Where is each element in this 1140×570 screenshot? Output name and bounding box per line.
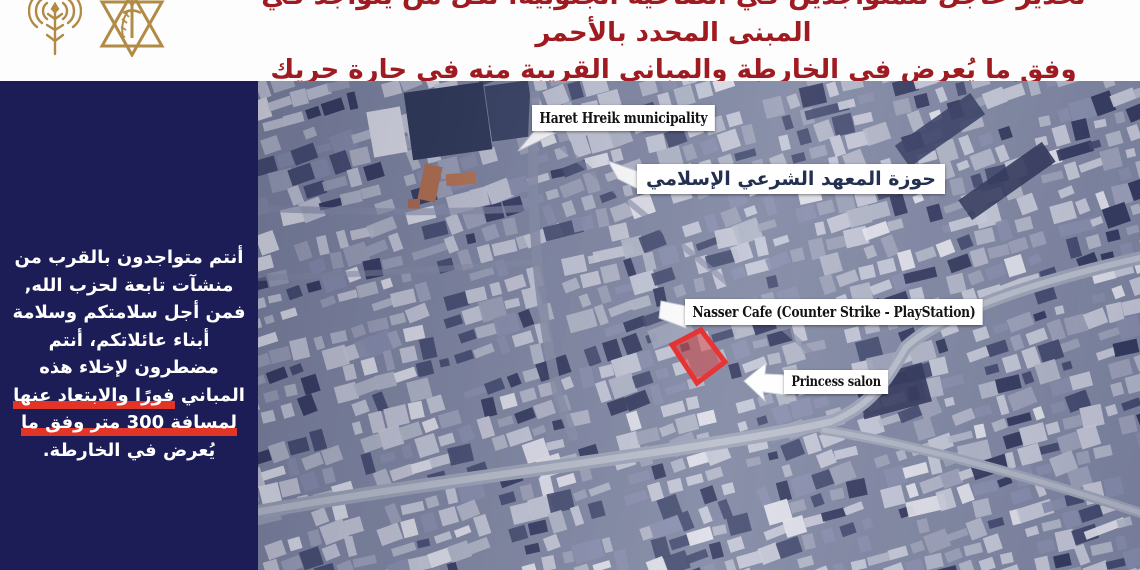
- evacuation-notice-panel: أنتم متواجدون بالقرب من منشآت تابعة لحزب…: [0, 81, 258, 570]
- red-underlined-text: لمسافة 300 متر وفق ما: [21, 412, 237, 436]
- warning-title-line1: تحذير عاجل للمتواجدين في الضاحية الجنوبي…: [215, 0, 1132, 52]
- notice-line: يُعرض في الخارطة.: [6, 437, 252, 465]
- satellite-imagery: [258, 81, 1140, 570]
- notice-line: أنتم متواجدون بالقرب من: [6, 244, 252, 272]
- notice-line: أبناء عائلاتكم، أنتم: [6, 327, 252, 355]
- map-label-hawza: حوزة المعهد الشرعي الإسلامي: [637, 164, 945, 194]
- notice-line: فمن أجل سلامتكم وسلامة: [6, 299, 252, 327]
- red-underlined-text: فورًا والابتعاد عنها: [13, 385, 174, 409]
- evacuation-notice-text: أنتم متواجدون بالقرب من منشآت تابعة لحزب…: [6, 244, 252, 464]
- satellite-map: Haret Hreik municipality حوزة المعهد الش…: [258, 81, 1140, 570]
- notice-line: مضطرون لإخلاء هذه: [6, 354, 252, 382]
- warning-title: تحذير عاجل للمتواجدين في الضاحية الجنوبي…: [215, 0, 1132, 81]
- spokesperson-antenna-icon: [28, 0, 82, 58]
- notice-line: لمسافة 300 متر وفق ما: [6, 409, 252, 437]
- warning-title-line2: وفق ما يُعرض في الخارطة والمباني القريبة…: [215, 52, 1132, 81]
- header: تحذير عاجل للمتواجدين في الضاحية الجنوبي…: [0, 0, 1140, 81]
- notice-line: المباني فورًا والابتعاد عنها: [6, 382, 252, 410]
- map-label-nasser-cafe: Nasser Cafe (Counter Strike - PlayStatio…: [685, 299, 983, 325]
- map-label-municipality: Haret Hreik municipality: [532, 105, 715, 131]
- warning-infographic: تحذير عاجل للمتواجدين في الضاحية الجنوبي…: [0, 0, 1140, 570]
- map-label-princess-salon: Princess salon: [784, 370, 888, 394]
- idf-emblem-icon: [94, 0, 170, 57]
- notice-line: منشآت تابعة لحزب الله,: [6, 272, 252, 300]
